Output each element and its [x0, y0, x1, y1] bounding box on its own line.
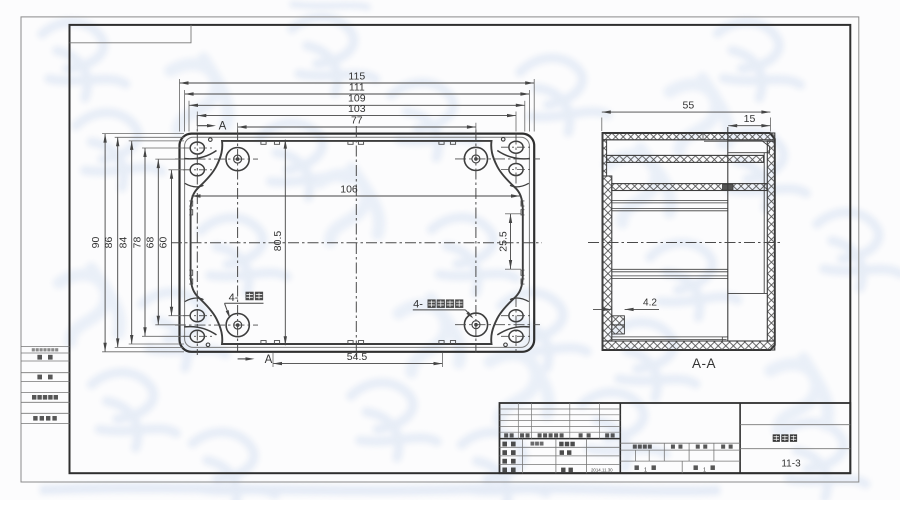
svg-text:80.5: 80.5: [272, 231, 284, 252]
svg-text:55: 55: [683, 99, 695, 111]
svg-text:1: 1: [703, 467, 706, 473]
svg-text:78: 78: [131, 237, 143, 249]
svg-text:25.5: 25.5: [497, 231, 509, 252]
svg-text:15: 15: [744, 113, 756, 125]
svg-text:68: 68: [144, 237, 156, 249]
svg-text:1: 1: [644, 467, 647, 473]
svg-text:77: 77: [351, 114, 363, 126]
svg-text:54.5: 54.5: [347, 351, 368, 363]
svg-text:2014.11.30: 2014.11.30: [591, 468, 613, 473]
svg-text:90: 90: [90, 237, 102, 249]
svg-text:4-: 4-: [413, 298, 423, 310]
svg-text:103: 103: [348, 103, 366, 115]
svg-text:A: A: [219, 121, 227, 133]
svg-text:4-: 4-: [229, 292, 239, 304]
svg-text:11-3: 11-3: [781, 458, 801, 469]
svg-text:86: 86: [103, 237, 115, 249]
svg-text:106: 106: [340, 183, 358, 195]
svg-text:4.2: 4.2: [643, 298, 657, 309]
svg-text:111: 111: [349, 81, 365, 93]
svg-text:84: 84: [117, 237, 129, 249]
svg-text:A-A: A-A: [692, 356, 716, 371]
svg-text:60: 60: [158, 237, 170, 249]
svg-text:A: A: [265, 354, 273, 366]
